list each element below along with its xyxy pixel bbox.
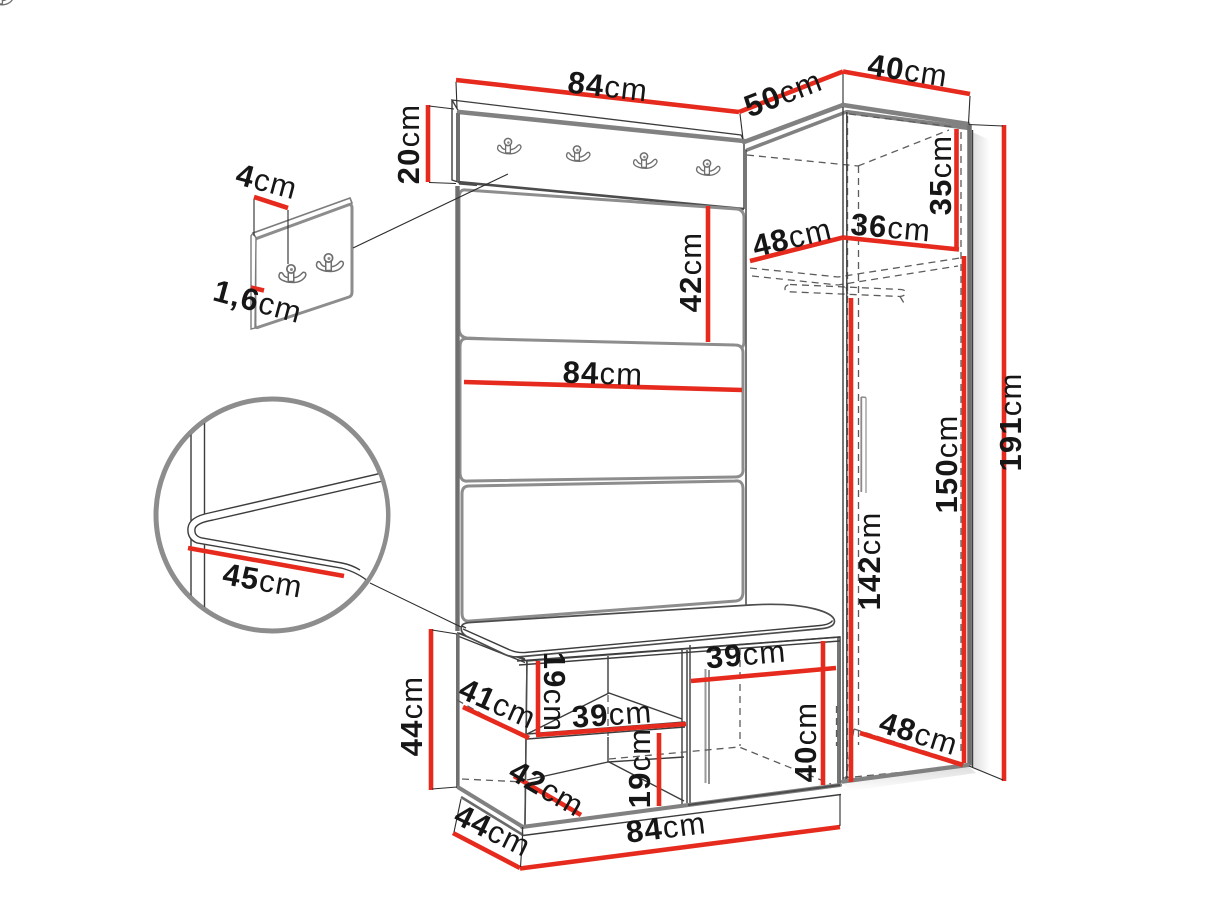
svg-text:35cm: 35cm bbox=[923, 135, 958, 216]
svg-text:36cm: 36cm bbox=[849, 207, 932, 249]
svg-text:150cm: 150cm bbox=[929, 414, 964, 513]
svg-text:84cm: 84cm bbox=[562, 355, 644, 393]
svg-text:39cm: 39cm bbox=[704, 634, 787, 676]
svg-text:44cm: 44cm bbox=[394, 676, 429, 757]
svg-text:20cm: 20cm bbox=[391, 104, 426, 185]
svg-text:40cm: 40cm bbox=[788, 702, 823, 783]
svg-text:19cm: 19cm bbox=[537, 652, 572, 733]
svg-text:191cm: 191cm bbox=[993, 372, 1028, 471]
svg-text:19cm: 19cm bbox=[622, 728, 657, 809]
svg-text:142cm: 142cm bbox=[852, 511, 887, 610]
svg-text:42cm: 42cm bbox=[673, 232, 708, 313]
